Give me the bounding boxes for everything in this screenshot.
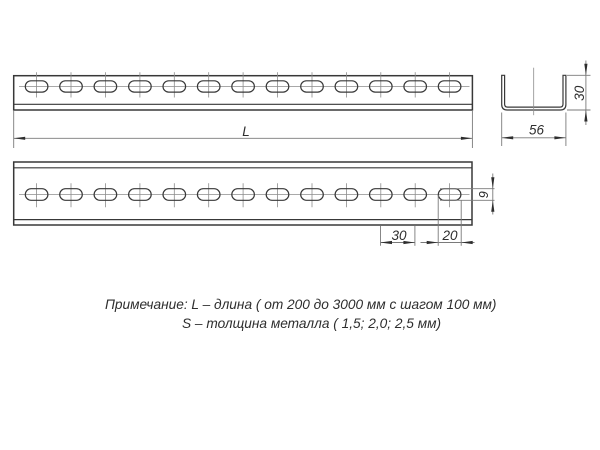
svg-text:56: 56 bbox=[529, 123, 545, 138]
svg-text:L: L bbox=[242, 124, 250, 139]
svg-text:20: 20 bbox=[441, 228, 458, 243]
svg-text:9: 9 bbox=[477, 191, 491, 198]
svg-text:S – толщина металла ( 1,5; 2,0: S – толщина металла ( 1,5; 2,0; 2,5 мм) bbox=[182, 316, 441, 331]
svg-text:30: 30 bbox=[391, 228, 407, 243]
svg-text:Примечание: L – длина ( от 200: Примечание: L – длина ( от 200 до 3000 м… bbox=[105, 297, 496, 312]
svg-text:30: 30 bbox=[572, 85, 587, 101]
